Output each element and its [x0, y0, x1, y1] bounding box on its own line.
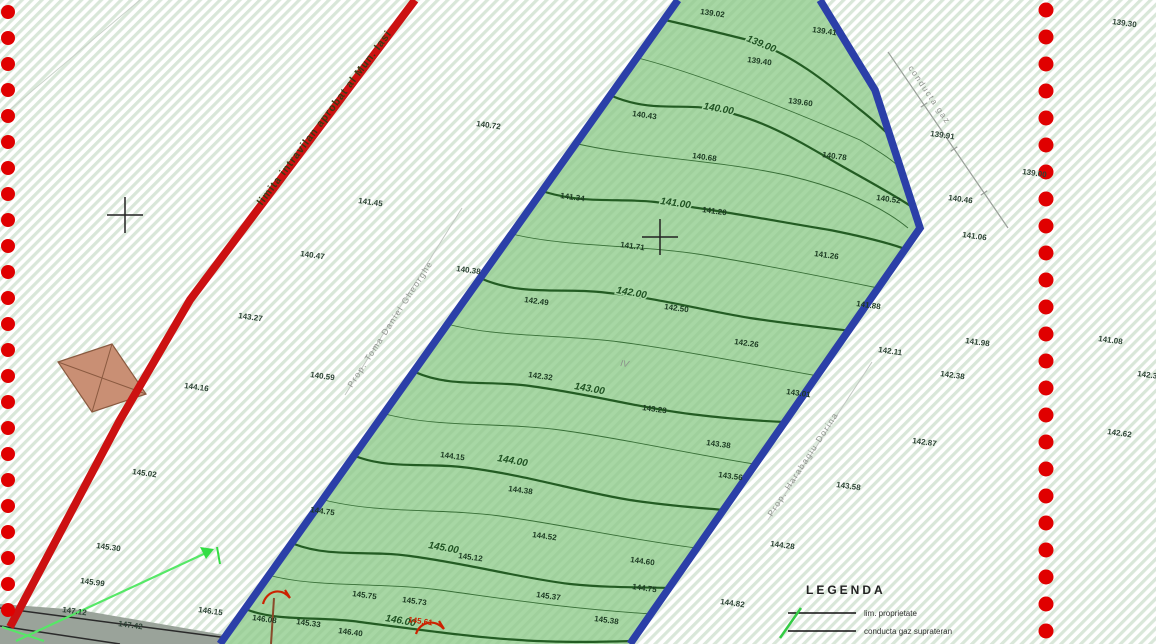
- boundary-dot: [1, 187, 15, 201]
- boundary-dot: [1, 343, 15, 357]
- boundary-dot: [1039, 273, 1054, 288]
- boundary-dot: [1039, 3, 1054, 18]
- survey-plan-svg: 139.00140.00141.00142.00143.00144.00145.…: [0, 0, 1156, 644]
- boundary-dot: [1, 421, 15, 435]
- boundary-dot: [1039, 246, 1054, 261]
- legend-item-label: lim. proprietate: [864, 609, 917, 618]
- boundary-dot: [1039, 192, 1054, 207]
- boundary-dot: [1, 473, 15, 487]
- boundary-dot: [1, 525, 15, 539]
- boundary-dot: [1039, 354, 1054, 369]
- boundary-dot: [1, 551, 15, 565]
- boundary-dot: [1, 109, 15, 123]
- boundary-dot: [1, 161, 15, 175]
- boundary-dot: [1039, 219, 1054, 234]
- boundary-dot: [1, 5, 15, 19]
- boundary-dot: [1, 31, 15, 45]
- boundary-dot: [1, 577, 15, 591]
- boundary-dot: [1, 603, 15, 617]
- boundary-dot: [1039, 381, 1054, 396]
- legend-title: LEGENDA: [806, 583, 886, 597]
- boundary-dot: [1, 395, 15, 409]
- boundary-dot: [1, 239, 15, 253]
- boundary-dot: [1039, 300, 1054, 315]
- boundary-dot: [1039, 30, 1054, 45]
- boundary-dot: [1039, 57, 1054, 72]
- boundary-dot: [1039, 462, 1054, 477]
- boundary-dot: [1, 265, 15, 279]
- boundary-dot: [1, 317, 15, 331]
- map-canvas: 139.00140.00141.00142.00143.00144.00145.…: [0, 0, 1156, 644]
- boundary-dot: [1, 291, 15, 305]
- boundary-dot: [1039, 489, 1054, 504]
- boundary-dot: [1, 135, 15, 149]
- boundary-dot: [1039, 570, 1054, 585]
- legend-item-label: conducta gaz suprateran: [864, 627, 952, 636]
- boundary-dot: [1, 447, 15, 461]
- boundary-dot: [1, 369, 15, 383]
- boundary-dot: [1039, 624, 1054, 639]
- boundary-dot: [1039, 516, 1054, 531]
- boundary-dot: [1039, 327, 1054, 342]
- boundary-dot: [1, 57, 15, 71]
- boundary-dot: [1039, 111, 1054, 126]
- boundary-dot: [1039, 84, 1054, 99]
- boundary-dot: [1039, 408, 1054, 423]
- boundary-dot: [1039, 435, 1054, 450]
- boundary-dot: [1039, 138, 1054, 153]
- boundary-dot: [1039, 543, 1054, 558]
- boundary-dot: [1, 499, 15, 513]
- boundary-dot: [1, 83, 15, 97]
- boundary-dot: [1039, 597, 1054, 612]
- boundary-dot: [1, 213, 15, 227]
